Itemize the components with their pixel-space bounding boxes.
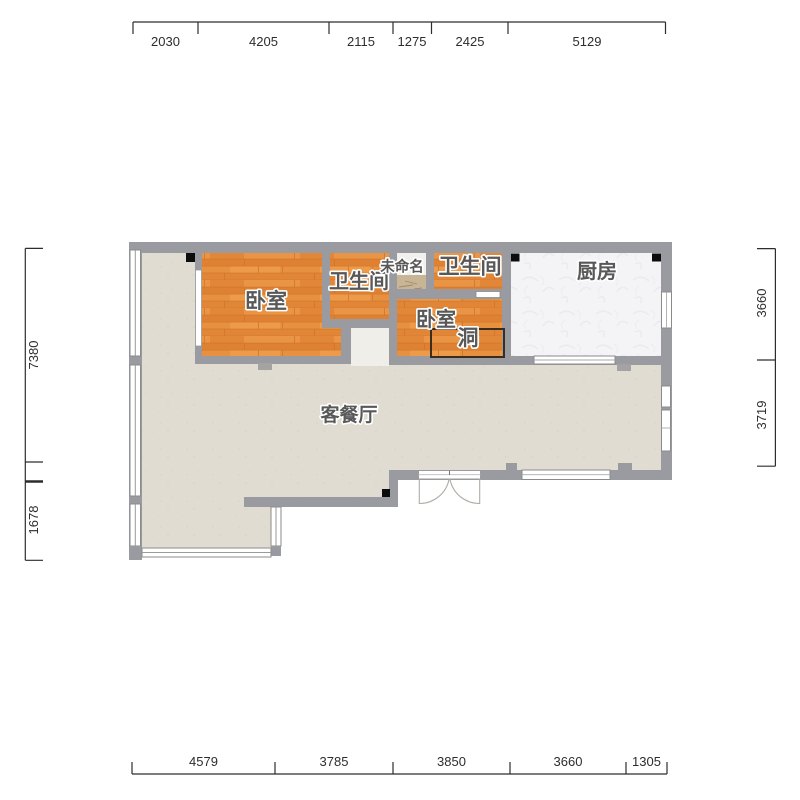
svg-text:2030: 2030	[151, 34, 180, 49]
svg-text:客餐厅: 客餐厅	[320, 403, 377, 426]
svg-text:1678: 1678	[26, 506, 41, 535]
svg-text:1275: 1275	[398, 34, 427, 49]
svg-text:卧室: 卧室	[245, 289, 287, 313]
svg-text:厨房: 厨房	[577, 259, 617, 283]
svg-text:4205: 4205	[249, 34, 278, 49]
svg-text:4579: 4579	[189, 754, 218, 769]
svg-text:5129: 5129	[573, 34, 602, 49]
svg-text:2425: 2425	[456, 34, 485, 49]
svg-text:未命名: 未命名	[379, 258, 424, 276]
svg-text:卫生间: 卫生间	[439, 255, 502, 279]
svg-text:3850: 3850	[437, 754, 466, 769]
svg-text:3660: 3660	[754, 289, 769, 318]
svg-text:7380: 7380	[26, 341, 41, 370]
svg-text:洞: 洞	[458, 327, 479, 350]
svg-text:3719: 3719	[754, 401, 769, 430]
svg-text:卧室: 卧室	[416, 307, 456, 331]
svg-text:3660: 3660	[554, 754, 583, 769]
svg-text:1305: 1305	[632, 754, 661, 769]
svg-text:2115: 2115	[347, 34, 375, 49]
svg-text:3785: 3785	[320, 754, 349, 769]
